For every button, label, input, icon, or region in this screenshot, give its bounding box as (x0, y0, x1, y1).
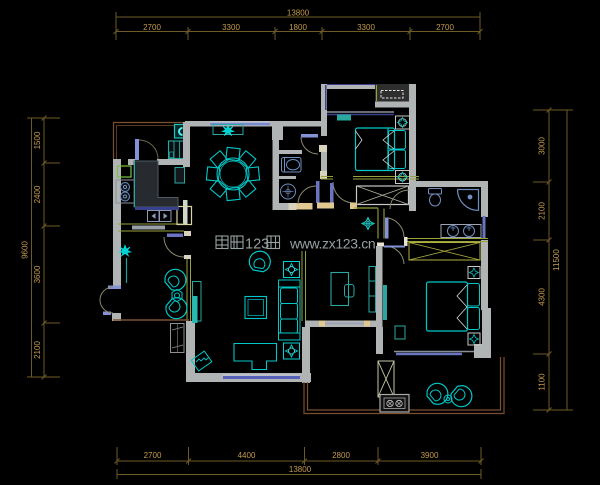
svg-text:4400: 4400 (238, 451, 256, 460)
svg-text:9600: 9600 (21, 241, 30, 259)
svg-text:3300: 3300 (357, 23, 375, 32)
svg-text:2700: 2700 (144, 451, 162, 460)
svg-text:2400: 2400 (33, 185, 42, 203)
svg-text:www.zx123.cn: www.zx123.cn (289, 236, 375, 252)
svg-text:2100: 2100 (33, 341, 42, 359)
svg-text:2700: 2700 (143, 23, 161, 32)
svg-text:13800: 13800 (289, 465, 312, 474)
svg-text:2800: 2800 (332, 451, 350, 460)
svg-text:2100: 2100 (538, 202, 547, 220)
svg-text:13800: 13800 (287, 9, 310, 18)
svg-text:1500: 1500 (33, 131, 42, 149)
svg-text:1800: 1800 (289, 23, 307, 32)
svg-text:1100: 1100 (538, 373, 547, 391)
svg-text:11500: 11500 (552, 249, 561, 271)
svg-text:3300: 3300 (222, 23, 240, 32)
svg-text:3600: 3600 (33, 265, 42, 283)
svg-text:123: 123 (245, 237, 269, 253)
svg-text:3000: 3000 (538, 137, 547, 155)
svg-text:3900: 3900 (421, 451, 439, 460)
svg-text:4300: 4300 (538, 288, 547, 306)
svg-text:2700: 2700 (436, 23, 454, 32)
